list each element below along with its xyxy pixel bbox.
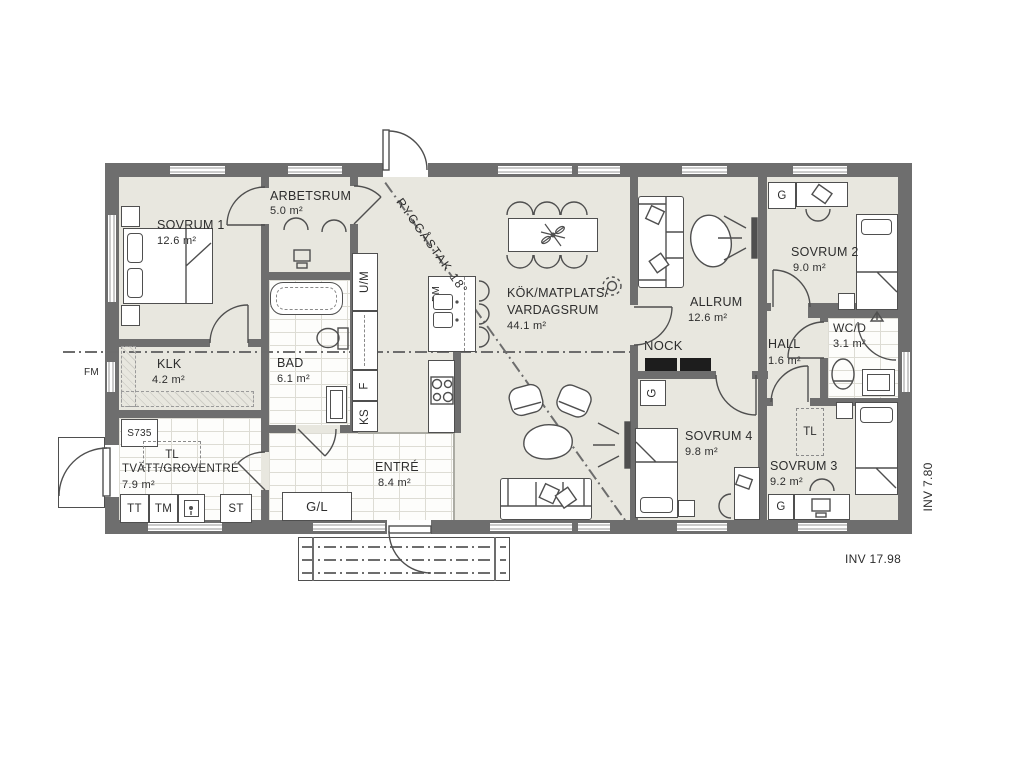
door-side-porch: [59, 448, 110, 496]
paper-icon: [736, 475, 753, 489]
computer-icon: [812, 499, 830, 517]
sofa-detail: [639, 196, 684, 288]
door-sovrum4: [716, 375, 756, 415]
door-wcd: [788, 322, 824, 358]
dining-chairs: [507, 202, 587, 268]
lounge-chair: [686, 211, 736, 270]
coffee-table: [524, 425, 572, 459]
door-allrum: [634, 307, 672, 345]
computer-icon: [294, 250, 310, 268]
armchair: [554, 382, 594, 420]
faucet: [455, 300, 458, 321]
toilet: [832, 359, 854, 389]
door-sovrum2: [773, 270, 810, 307]
door-entry-top: [383, 130, 427, 170]
stool: [603, 277, 621, 295]
door-tvatt: [238, 452, 265, 490]
drain-icon: [189, 506, 193, 515]
armchair: [507, 382, 545, 417]
floor-plan-canvas: U/M F KS DM G G TL G S735 TL TT TM ST G/…: [0, 0, 1024, 768]
cooktop: [431, 377, 453, 404]
desk-chairs: [284, 218, 346, 232]
door-sovrum1: [227, 187, 265, 225]
bed-fold: [186, 229, 211, 303]
tv: [593, 422, 630, 468]
plant-icon: [540, 224, 565, 246]
shower-screen: [858, 312, 896, 360]
door-sovrum3: [771, 366, 808, 402]
paper-icon: [812, 184, 832, 203]
desk-chair: [810, 479, 834, 491]
bed-fold: [857, 272, 897, 292]
door-klk: [210, 305, 248, 343]
desk-chair: [719, 494, 731, 518]
toilet: [317, 328, 348, 349]
door-bad: [298, 429, 336, 456]
bed-fold: [636, 442, 677, 462]
sofa-detail: [500, 479, 592, 508]
plan-linework: [0, 0, 1024, 768]
bed-fold: [856, 468, 897, 488]
desk-chair: [806, 209, 830, 221]
bar-stools: [479, 281, 489, 347]
door-arbetsrum: [354, 186, 381, 224]
door-entry-front: [389, 526, 431, 573]
